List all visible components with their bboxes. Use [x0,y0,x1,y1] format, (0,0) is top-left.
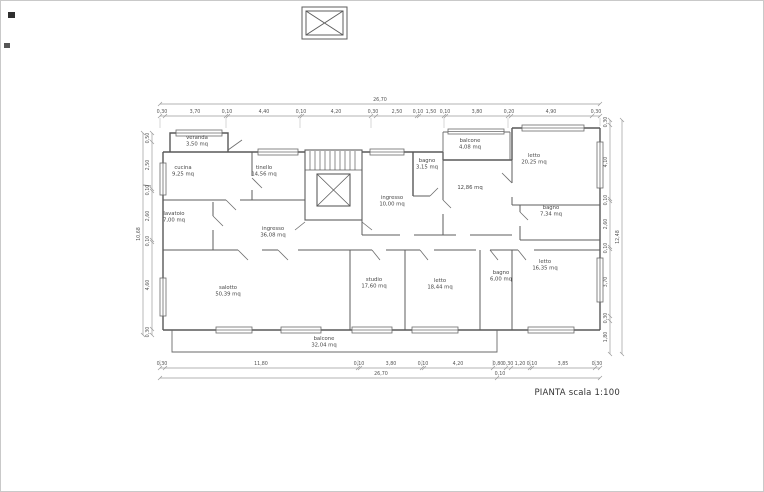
dim-right-3: 2,60 [603,219,609,230]
dim-bottom-3: 3,80 [386,361,397,367]
room-label-salotto: salotto [219,285,237,291]
room-label-bagno: bagno [493,270,510,276]
dim-bottom-2: 0,10 [354,361,365,367]
dim-bottom-7: 0,30 [503,361,514,367]
stair-core [305,150,362,220]
room-label-letto: letto [539,259,551,265]
scan-speck [4,43,10,48]
dim-top-11: 3,80 [472,109,483,115]
room-label-letto: letto [528,153,540,159]
dim-top-14: 0,30 [591,109,602,115]
dim-top-6: 0,30 [368,109,379,115]
window [281,327,321,333]
room-area-letto: 20,25 mq [521,160,546,166]
dim-top-10: 0,10 [440,109,451,115]
window [160,163,166,195]
room-area-salotto: 50,39 mq [215,292,240,298]
dim-right-0: 0,30 [603,117,609,128]
dim-top-2: 0,10 [222,109,233,115]
scanned-floor-plan-page: veranda3,50 mqcucina9,25 mqtinello14,56 … [0,0,764,492]
plan-title: PIANTA scala 1:100 [534,388,620,398]
room-area-bagno: 6,00 mq [490,277,512,283]
room-area-bagno: 3,15 mq [416,165,438,171]
dim-left-1: 2,50 [145,160,151,171]
dimension-labels: 26,700,303,700,104,400,104,200,302,500,1… [136,97,621,377]
dim-right-7: 1,80 [603,332,609,343]
room-area-lavatoio: 7,00 mq [163,218,185,224]
shaft-cross-icon [306,11,343,35]
room-area-studio: 17,60 mq [361,284,386,290]
dim-top-5: 4,20 [331,109,342,115]
dim-bottom-10: 3,85 [558,361,569,367]
room-label-bagno: bagno [419,158,436,164]
room-area-veranda: 3,50 mq [186,142,208,148]
dim-right-5: 3,70 [603,277,609,288]
dim-bottom-extra-0: 26,70 [374,371,388,377]
room-label-veranda: veranda [186,135,208,141]
dim-left-3: 2,60 [145,211,151,222]
dim-left-2: 0,10 [145,185,151,196]
room-area-bagno: 7,34 mq [540,212,562,218]
room-label-letto: letto [434,278,446,284]
room-label-balcone: balcone [460,138,481,144]
room-label-ingresso: ingresso [262,226,284,232]
scan-speck [8,12,15,18]
dim-right-6: 0,30 [603,313,609,324]
dim-top-13: 4,90 [546,109,557,115]
window [412,327,458,333]
room-area-letto: 18,44 mq [427,285,452,291]
dim-left-0: 0,50 [145,133,151,144]
dim-top-4: 0,10 [296,109,307,115]
dim-top-8: 0,10 [413,109,424,115]
room-label-balcone: balcone [314,336,335,342]
dim-top-12: 0,20 [504,109,515,115]
stair-shaft-detail [302,7,347,39]
dim-bottom-4: 0,10 [418,361,429,367]
room-label-cucina: cucina [174,165,191,171]
dim-bottom-1: 11,80 [254,361,268,367]
dim-right-4: 0,10 [603,243,609,254]
room-area-balcone: 4,08 mq [459,145,481,151]
window [522,125,584,131]
room-area-ingresso: 10,00 mq [379,202,404,208]
dim-bottom-11: 0,30 [592,361,603,367]
room-label-tinello: tinello [256,165,272,171]
window [597,142,603,188]
dim-left-4: 0,10 [145,236,151,247]
window [352,327,392,333]
dim-bottom-5: 4,20 [453,361,464,367]
dim-right-2: 0,10 [603,195,609,206]
room-label-lavatoio: lavatoio [163,211,184,217]
dim-top-0: 0,30 [157,109,168,115]
window [370,149,404,155]
window [448,129,504,134]
window [216,327,252,333]
dim-top-9: 1,50 [426,109,437,115]
dim-top-total: 26,70 [373,97,387,103]
dim-left-5: 4,60 [145,280,151,291]
window [597,258,603,302]
room-area-balcone: 32,04 mq [311,343,336,349]
balcony-rails [172,132,510,352]
room-label-studio: studio [366,277,382,283]
room-label-ingresso: ingresso [381,195,403,201]
dim-bottom-8: 1,20 [515,361,526,367]
dim-left-6: 0,30 [145,327,151,338]
room-area-cucina: 9,25 mq [172,172,194,178]
dim-top-7: 2,50 [392,109,403,115]
window [160,278,166,316]
dim-right-total: 12,48 [615,230,621,244]
dim-bottom-extra-1: 0,10 [495,371,506,377]
dim-bottom-9: 0,10 [527,361,538,367]
dim-left-total: 10,68 [136,227,142,241]
window [528,327,574,333]
scan-artifacts [4,12,151,186]
dim-right-1: 4,10 [603,157,609,168]
stair-core-outline [305,150,362,220]
stair-steps [310,151,355,170]
room-area-letto: 16,35 mq [532,266,557,272]
room-area-ingresso: 36,08 mq [260,233,285,239]
window [258,149,298,155]
room-area-tinello: 14,56 mq [251,172,276,178]
dim-top-3: 4,40 [259,109,270,115]
elevator-cross-icon [317,174,350,206]
room-area-unnamed: 12,86 mq [457,185,482,191]
dim-top-1: 3,70 [190,109,201,115]
interior-walls [163,152,600,330]
dim-bottom-0: 0,30 [157,361,168,367]
room-label-bagno: bagno [543,205,560,211]
floor-plan-drawing: veranda3,50 mqcucina9,25 mqtinello14,56 … [0,0,764,492]
